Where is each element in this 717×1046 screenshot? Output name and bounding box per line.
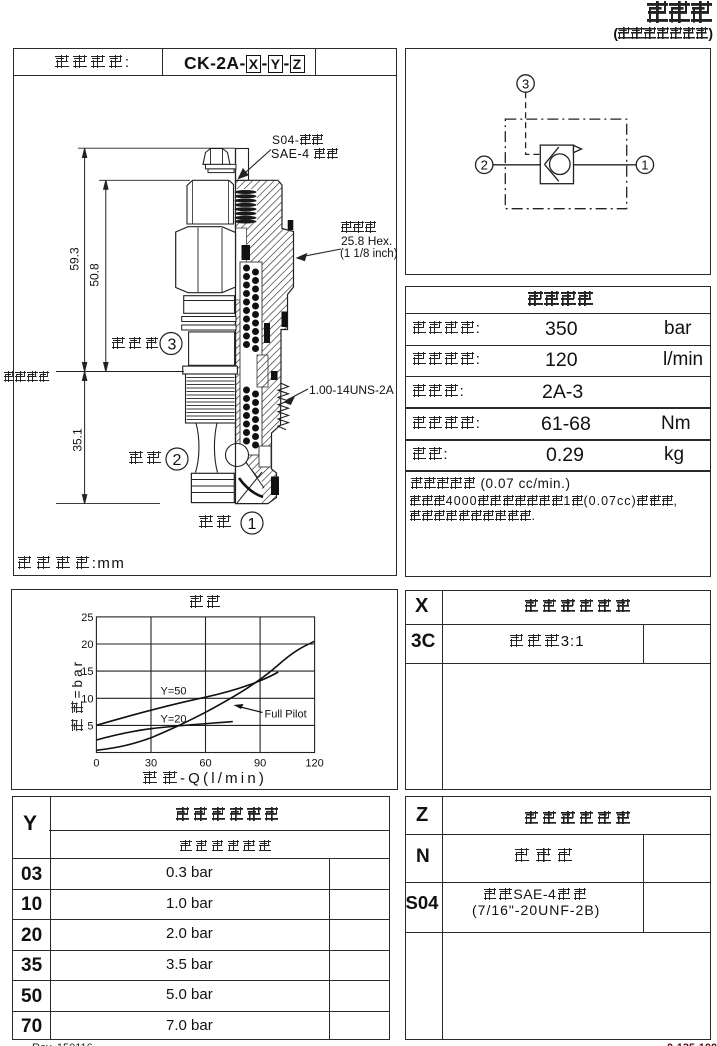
svg-text:Y=20: Y=20 [160, 713, 186, 725]
svg-text:2: 2 [173, 452, 182, 469]
svg-text:30: 30 [144, 757, 156, 769]
svg-text:20: 20 [81, 639, 93, 651]
svg-text:60: 60 [199, 757, 211, 769]
svg-text:1: 1 [641, 158, 648, 173]
svg-text:3: 3 [168, 336, 177, 353]
svg-text:Y=50: Y=50 [160, 685, 186, 697]
svg-text:3: 3 [522, 76, 529, 91]
svg-text:120: 120 [305, 757, 323, 769]
svg-text:1: 1 [248, 516, 257, 533]
svg-text:5: 5 [87, 720, 93, 732]
svg-text:0: 0 [93, 757, 99, 769]
svg-text:2: 2 [481, 158, 488, 173]
svg-text:25: 25 [81, 611, 93, 623]
svg-text:90: 90 [253, 757, 265, 769]
svg-text:Full Pilot: Full Pilot [264, 708, 306, 720]
